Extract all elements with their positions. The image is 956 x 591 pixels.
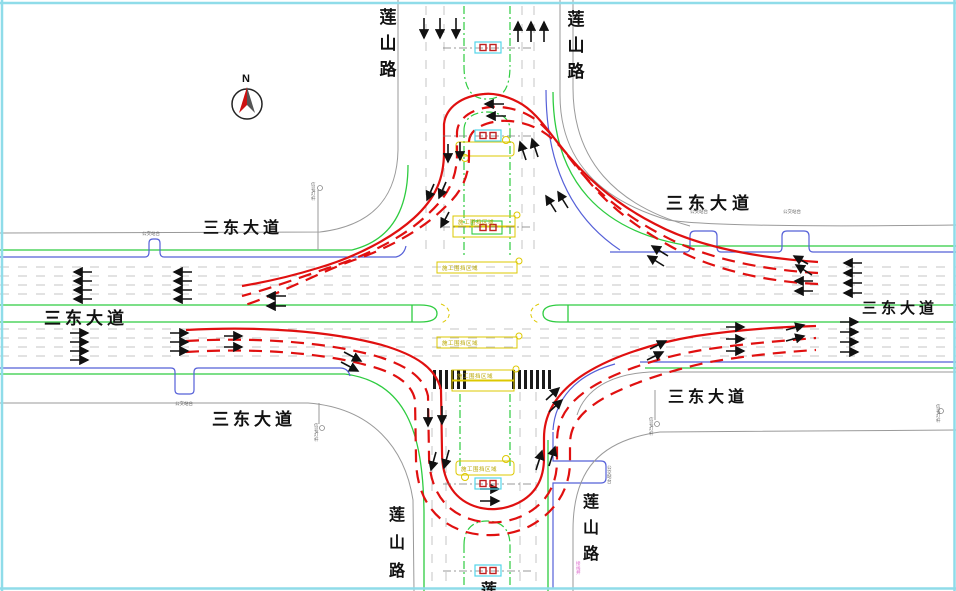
construction-caption-north: 施工围挡区域 <box>458 218 494 226</box>
north-compass <box>232 87 262 119</box>
bus-bay-label-west-south: 公交站台 <box>175 401 193 407</box>
pole-label-southeast: 信号灯杆 <box>649 418 655 436</box>
road-label-ew-northeast: 三东大道 <box>666 189 754 214</box>
road-label-ew-southwest: 三东大道 <box>212 405 296 430</box>
detour-arrows <box>267 104 668 501</box>
construction-caption-center-south: 施工围挡区域 <box>442 339 478 347</box>
pole-label-north: 信号灯杆 <box>311 183 317 201</box>
road-label-ns-south-partial: 莲 <box>481 576 497 591</box>
road-label-ew-east: 三东大道 <box>862 297 938 318</box>
road-label-ew-northwest: 三东大道 <box>203 214 283 238</box>
pole-label-southwest: 信号灯杆 <box>314 424 320 442</box>
construction-caption-crosswalk: 施工围挡区域 <box>457 372 493 380</box>
bus-bay-label-east-2: 公交站台 <box>783 209 801 215</box>
construction-markers <box>437 137 539 481</box>
signal-symbols <box>442 42 533 576</box>
intersection-plan: 三东大道 三东大道 三东大道 三东大道 三东大道 三东大道 莲山路 莲山路 莲山… <box>0 0 956 591</box>
road-label-ns-northeast: 莲山路 <box>567 7 585 85</box>
road-label-ns-southeast: 莲山路 <box>582 490 600 568</box>
road-label-ew-west: 三东大道 <box>44 304 128 329</box>
road-label-ew-southeast: 三东大道 <box>668 383 748 407</box>
plan-drawing <box>0 0 956 591</box>
construction-caption-south: 施工围挡区域 <box>461 465 497 473</box>
bus-bay-label-south-leg: 公交站台 <box>607 466 613 484</box>
detour-path-south-loop <box>186 326 816 535</box>
pipe-label-south: 接线井 <box>576 562 582 576</box>
lane-markings <box>0 6 956 588</box>
road-label-ns-southwest: 莲山路 <box>388 502 406 586</box>
road-label-ns-northwest: 莲山路 <box>379 5 397 83</box>
bus-bay-label-east-1: 公交站台 <box>690 209 708 215</box>
pole-label-east: 信号灯杆 <box>936 405 942 423</box>
drawing-frame <box>0 0 956 591</box>
construction-caption-center-north: 施工围挡区域 <box>442 264 478 272</box>
compass-north-label: N <box>242 73 250 85</box>
curb-lines <box>0 0 956 591</box>
bus-bay-label-west-north: 公交站台 <box>142 231 160 237</box>
